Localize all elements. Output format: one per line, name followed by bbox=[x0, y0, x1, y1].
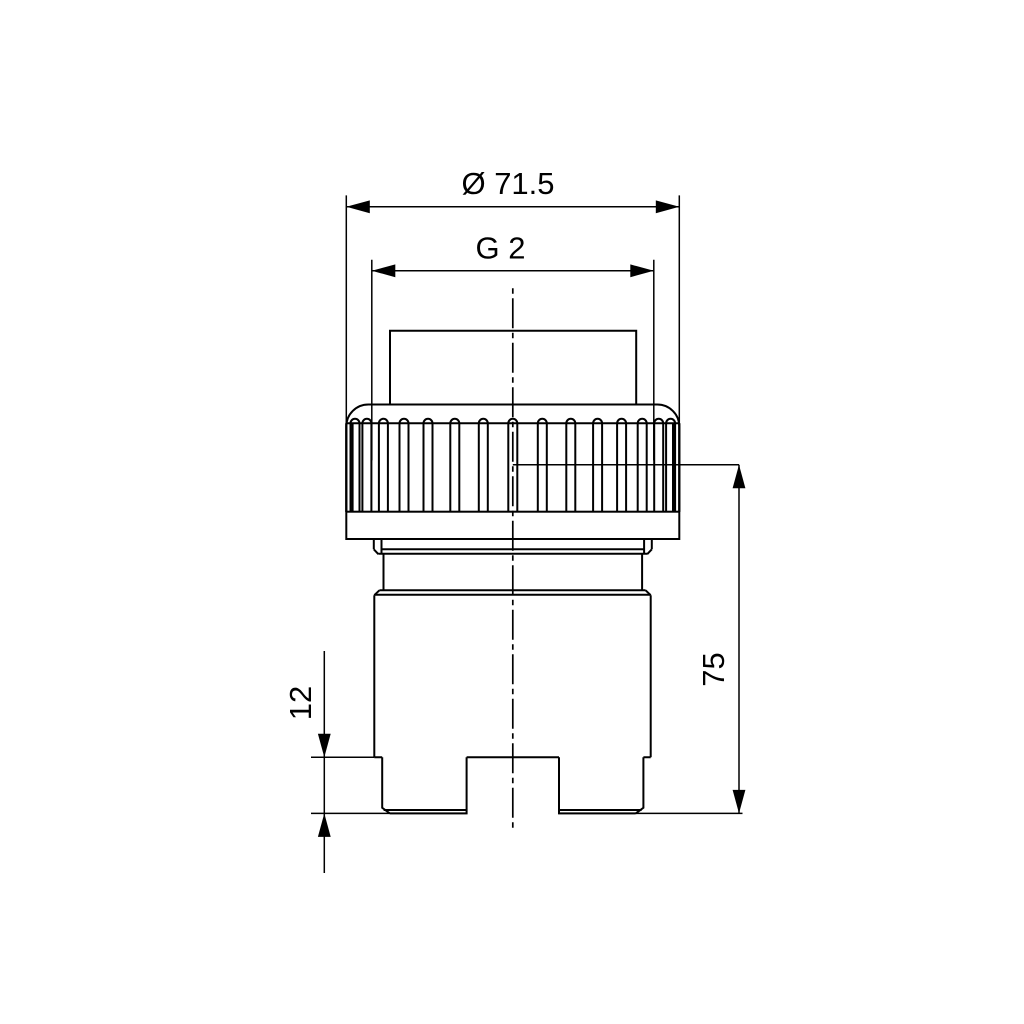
svg-text:12: 12 bbox=[283, 686, 318, 720]
svg-text:75: 75 bbox=[696, 652, 731, 686]
svg-text:Ø 71.5: Ø 71.5 bbox=[461, 166, 554, 201]
svg-text:G 2: G 2 bbox=[476, 230, 526, 265]
